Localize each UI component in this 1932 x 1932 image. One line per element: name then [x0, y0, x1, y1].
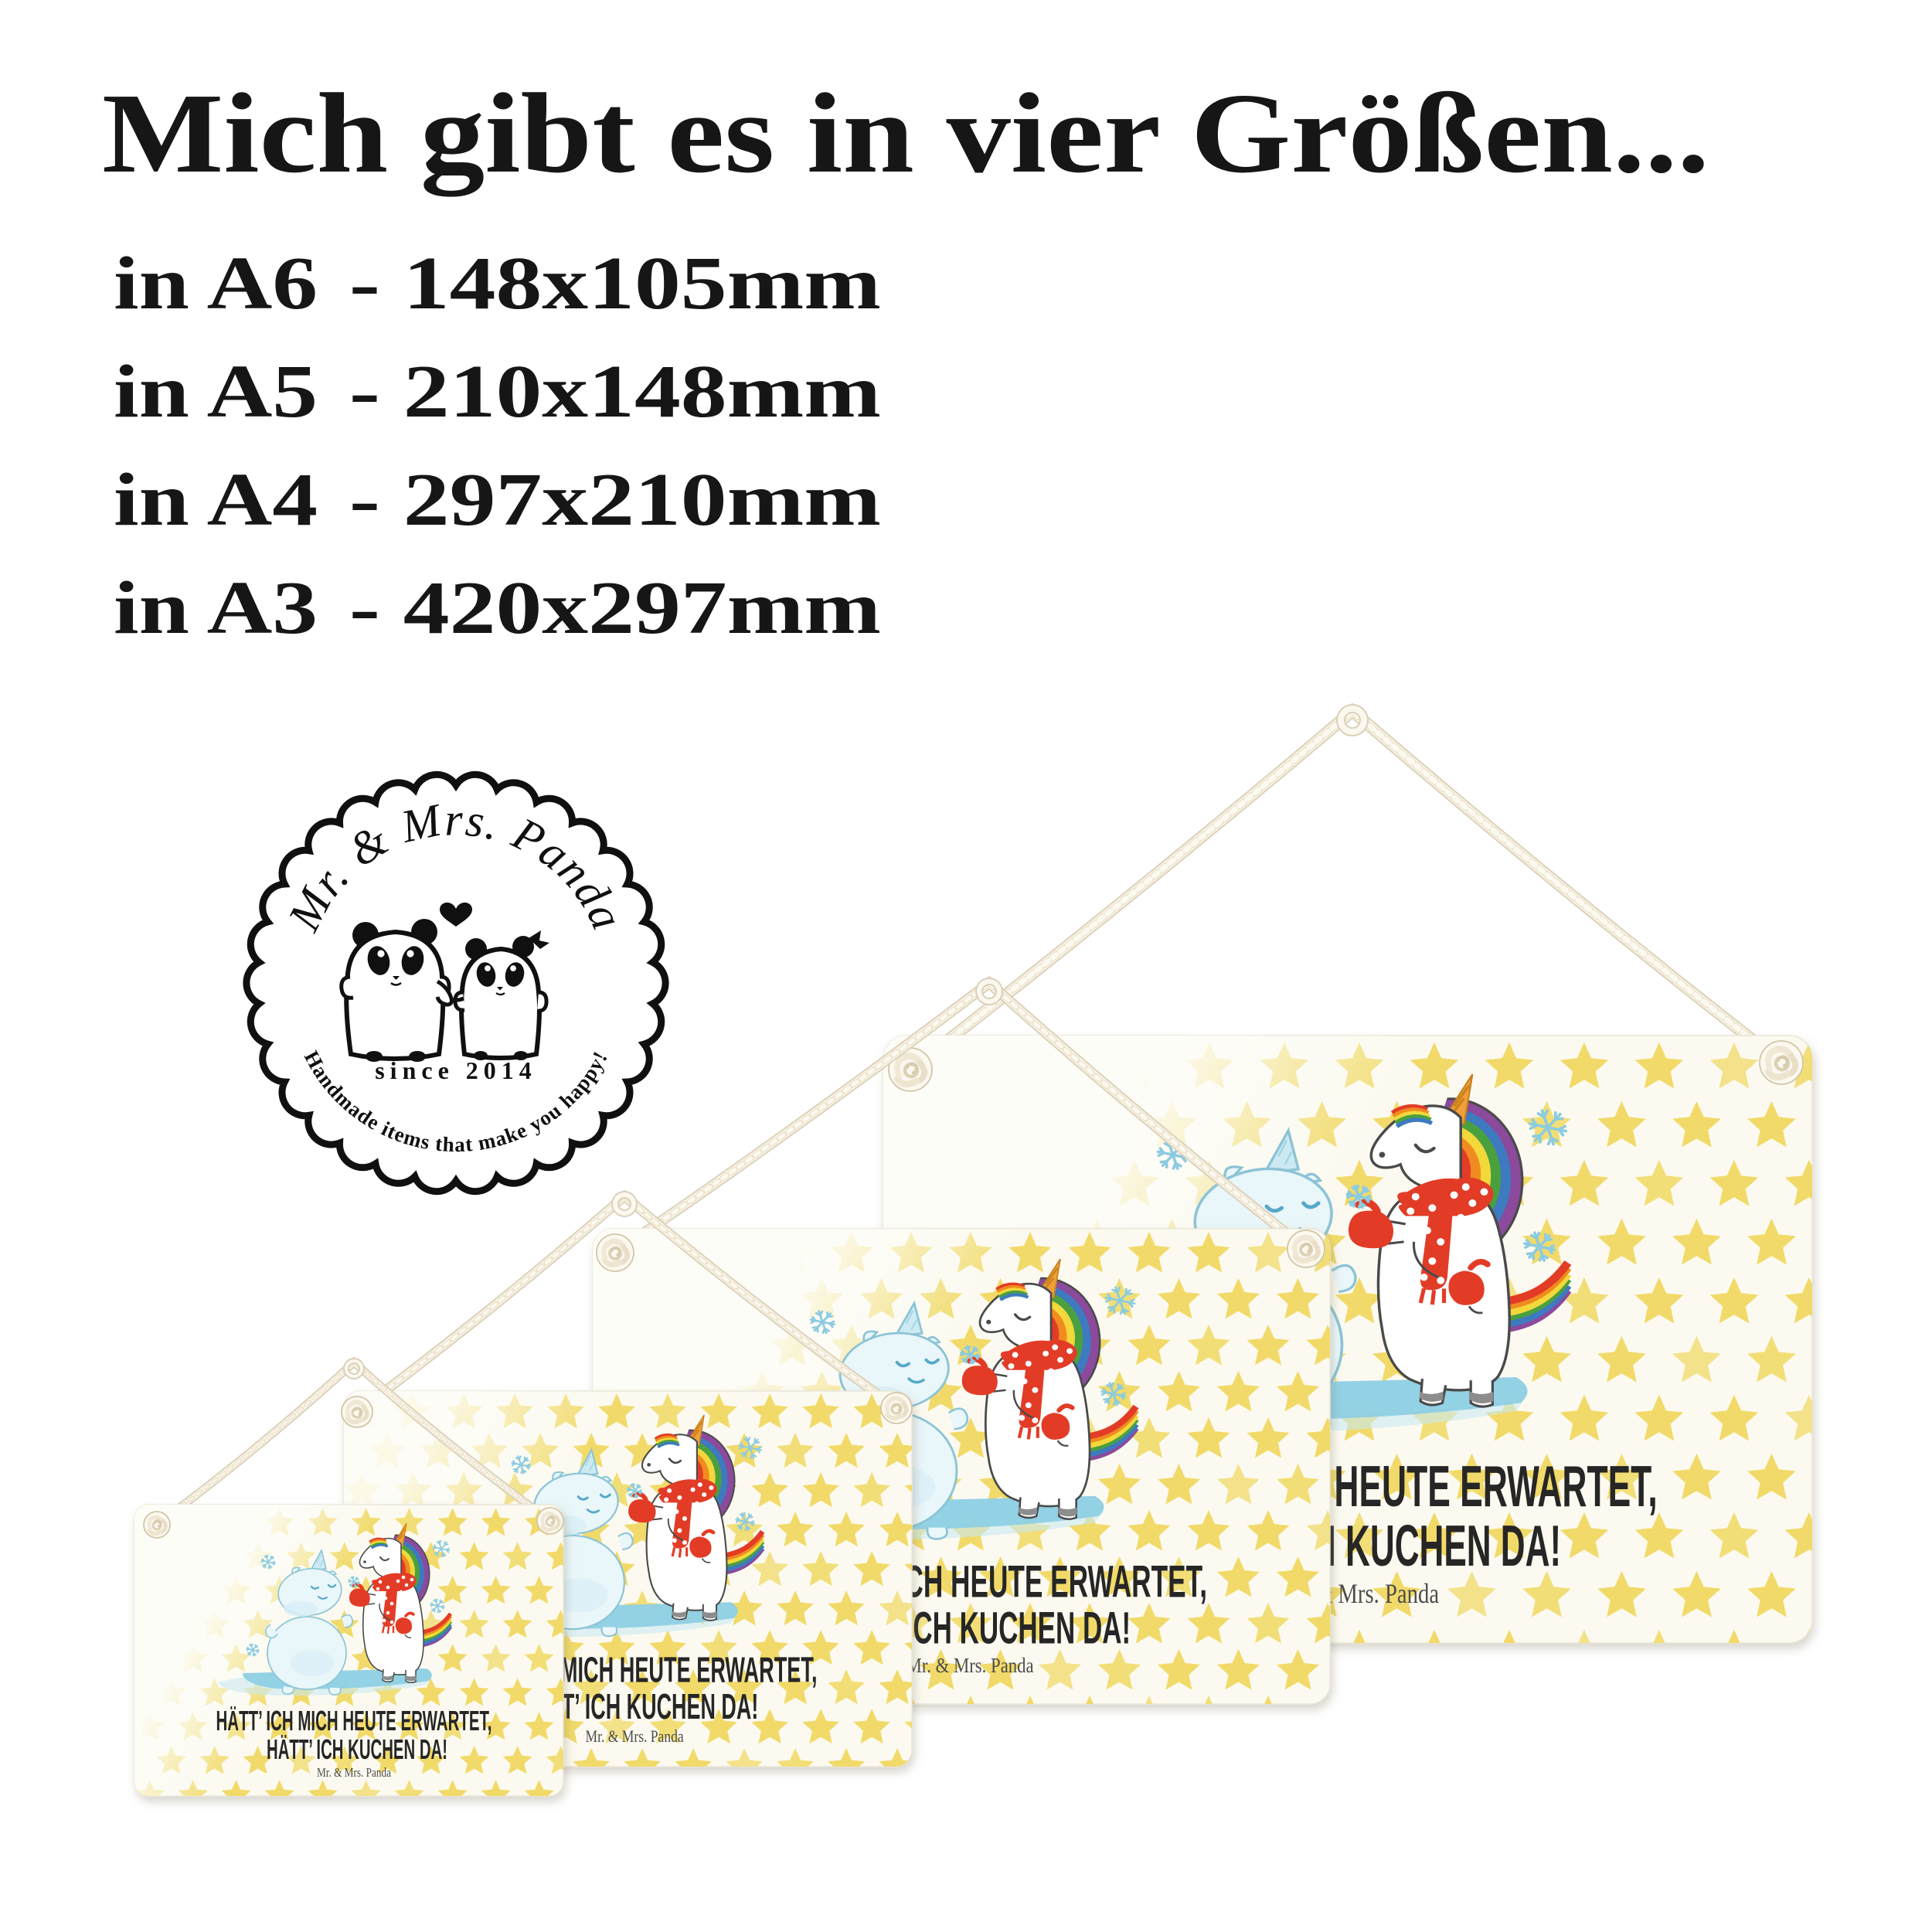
svg-text:in A3- 420x297mm: in A3- 420x297mm	[114, 566, 881, 650]
svg-text:in A5- 210x148mm: in A5- 210x148mm	[114, 350, 881, 434]
svg-text:Mich gibt es in vier Größen...: Mich gibt es in vier Größen...	[102, 70, 1709, 197]
svg-text:since 2014: since 2014	[375, 1056, 537, 1084]
svg-text:in A6- 148x105mm: in A6- 148x105mm	[114, 242, 881, 325]
svg-text:in A4- 297x210mm: in A4- 297x210mm	[114, 458, 881, 542]
